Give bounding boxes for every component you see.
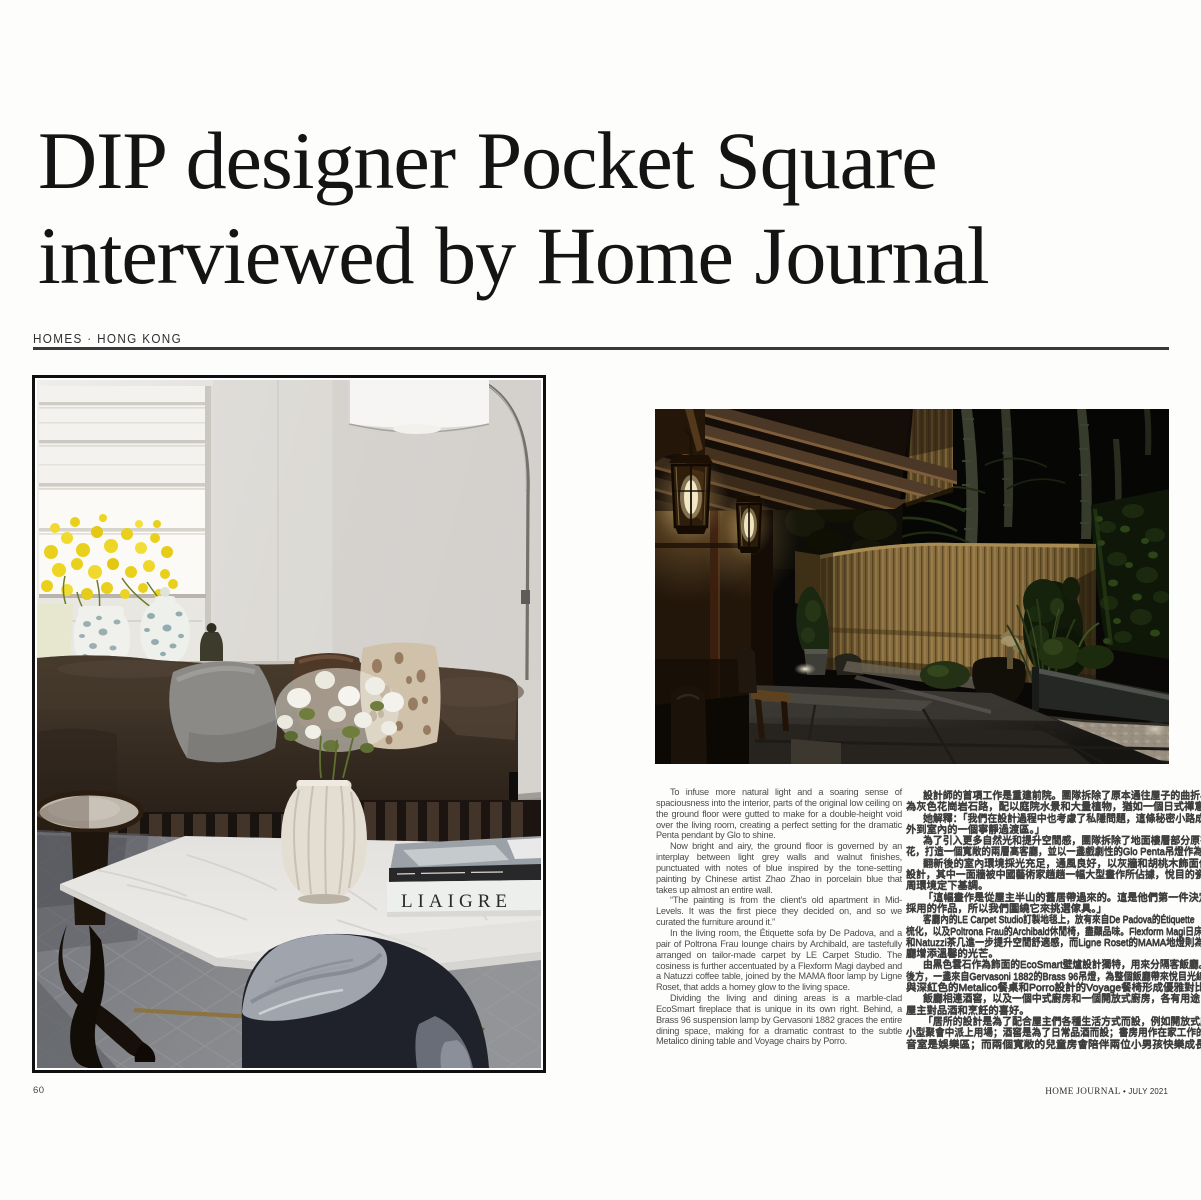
svg-text:LIAIGRE: LIAIGRE — [401, 891, 512, 912]
